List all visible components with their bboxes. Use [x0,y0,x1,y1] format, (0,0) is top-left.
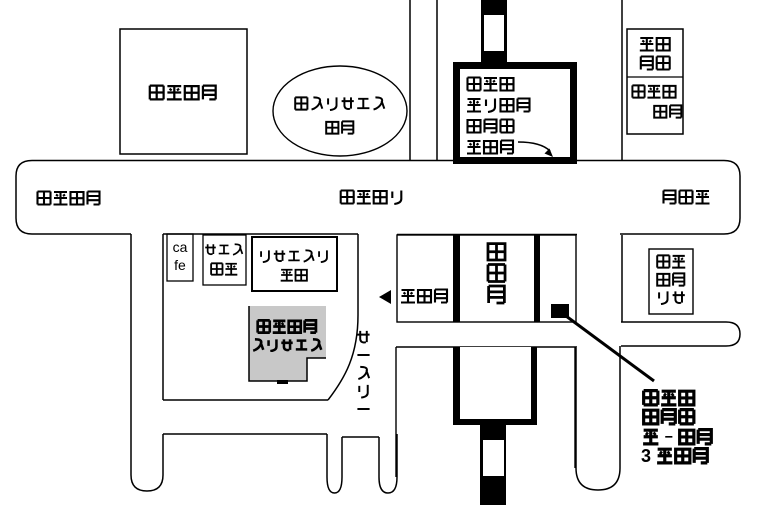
svg-text:fe: fe [174,257,186,273]
svg-text:ca: ca [173,239,188,255]
svg-text:3: 3 [641,446,651,466]
